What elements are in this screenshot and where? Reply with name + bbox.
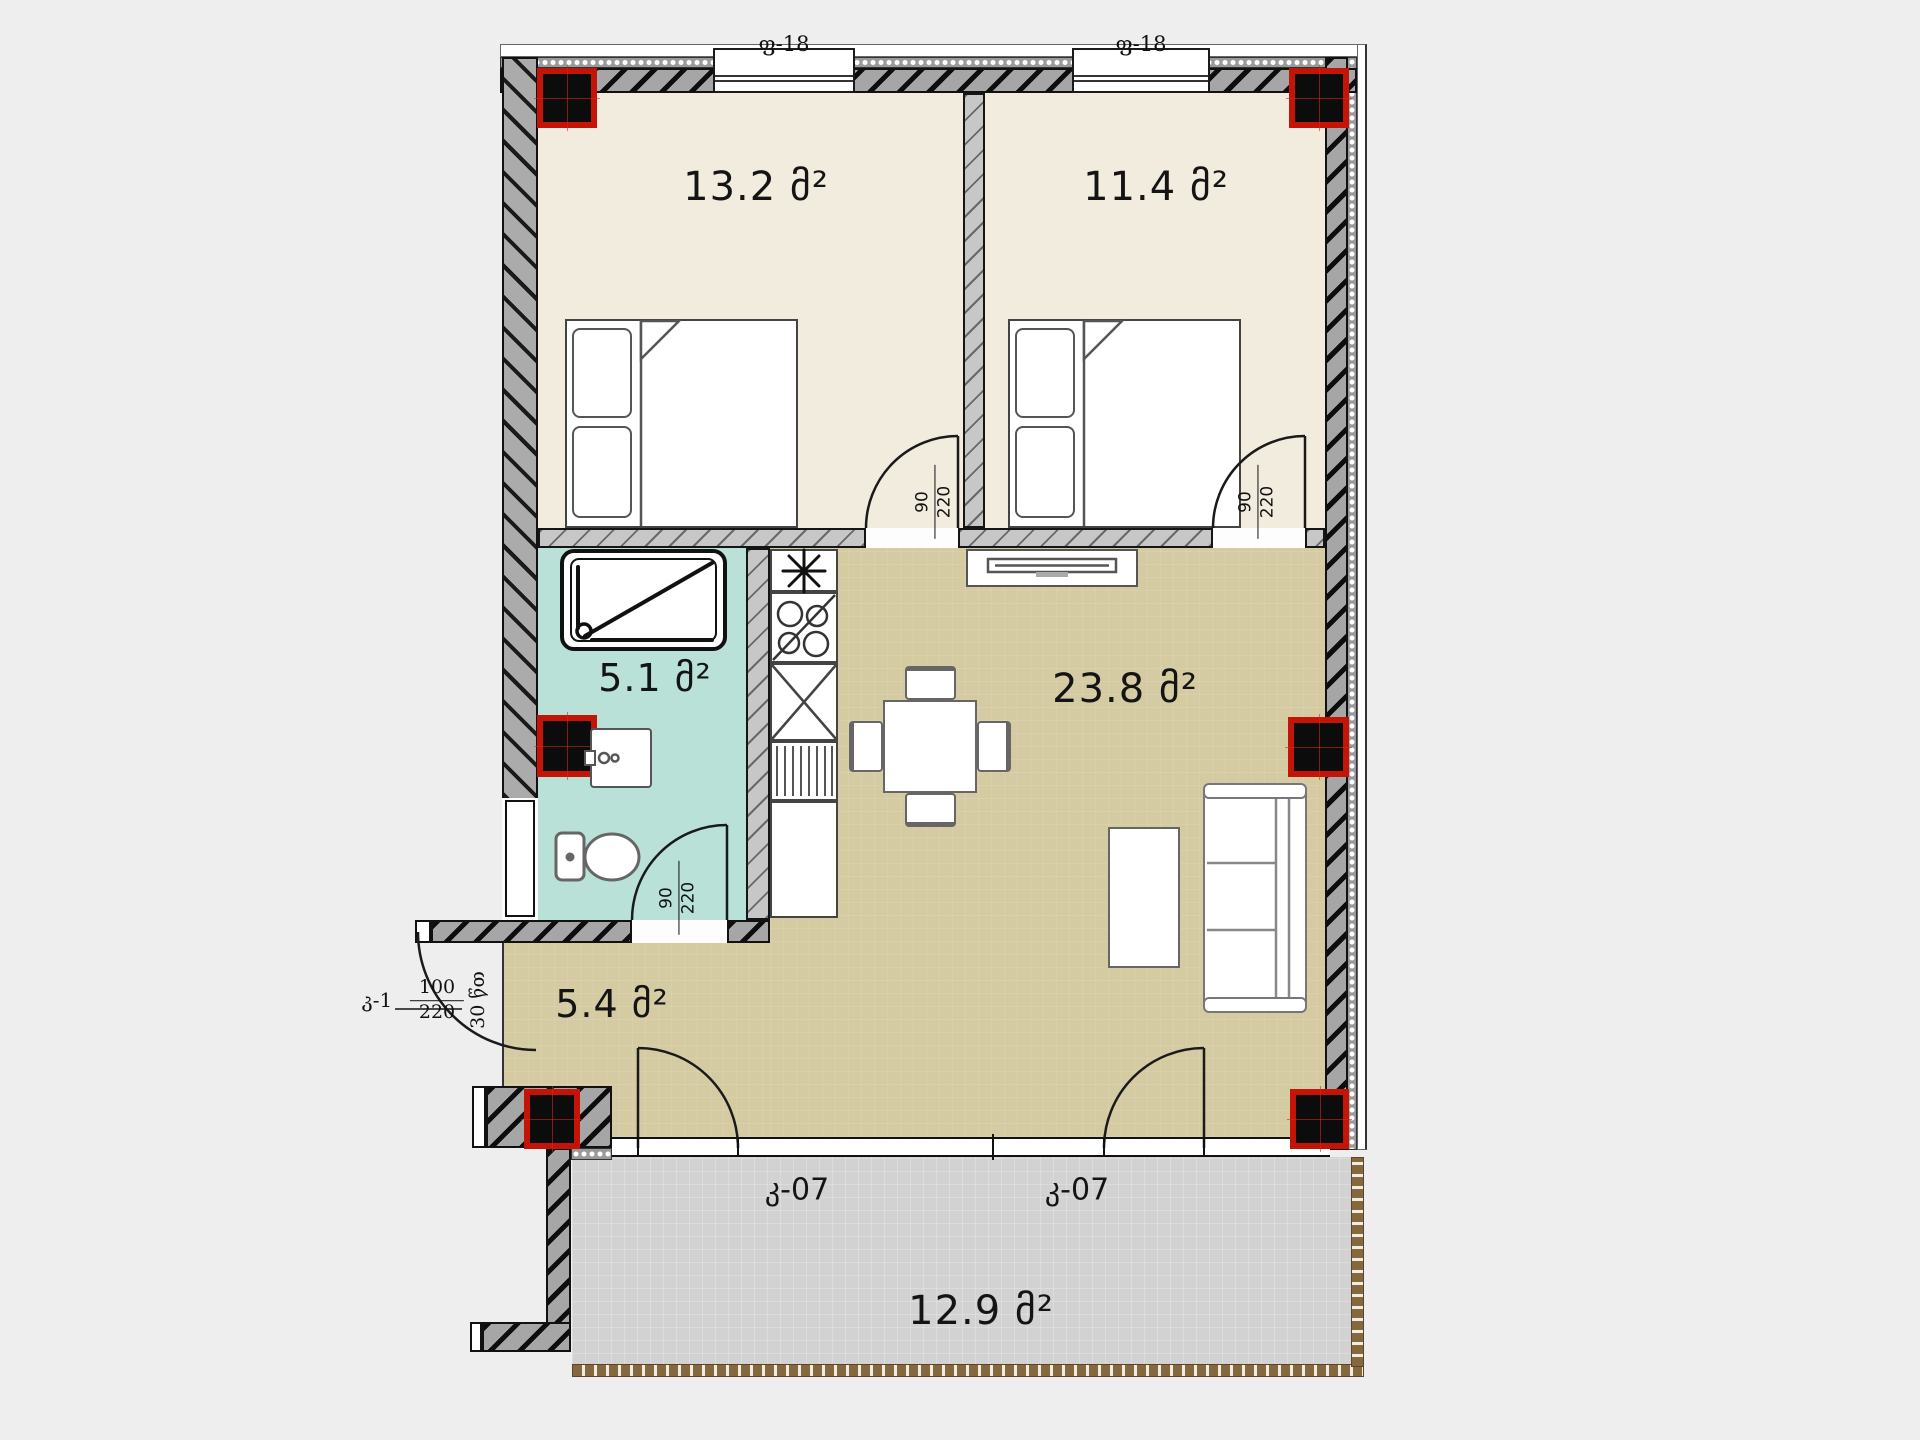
window-glazing-line bbox=[715, 75, 853, 77]
hallway-area-label: 5.4 მ² bbox=[555, 982, 669, 1026]
kitchen-boiler-cabinet bbox=[770, 549, 838, 592]
balcony-glazing-band bbox=[612, 1137, 1330, 1157]
floor-plan-canvas: 13.2 მ² 11.4 მ² 5.1 მ² 23.8 მ² 5.4 მ² 12… bbox=[0, 0, 1920, 1440]
tv-console bbox=[966, 549, 1138, 587]
entrance-door-label: კ-1 bbox=[362, 988, 392, 1012]
living-area-label: 23.8 მ² bbox=[1052, 666, 1198, 712]
bedroom-divider-wall bbox=[963, 93, 985, 528]
bed2-pillow-top bbox=[1015, 328, 1075, 418]
bedroom1-door-size: 90 220 bbox=[913, 465, 954, 539]
balcony-area-label: 12.9 მ² bbox=[908, 1288, 1054, 1334]
balcony-door2-label: კ-07 bbox=[1045, 1173, 1109, 1208]
kitchen-cabinet-x bbox=[770, 663, 838, 741]
top-insulation-strip bbox=[500, 57, 1357, 68]
top-facade-band bbox=[500, 44, 1366, 57]
dining-table bbox=[883, 700, 977, 793]
sink-faucet bbox=[584, 750, 596, 766]
balcony-foot-wall-cap bbox=[470, 1322, 482, 1352]
bed1-pillow-bottom bbox=[572, 426, 632, 518]
balcony-railing-right bbox=[1351, 1157, 1364, 1367]
right-exterior-wall bbox=[1325, 57, 1348, 1150]
window1-label: ფ-18 bbox=[759, 32, 810, 56]
column-mid-left bbox=[537, 715, 597, 777]
bedrooms-bottom-wall-c bbox=[1305, 528, 1325, 548]
balcony-door1-label: კ-07 bbox=[765, 1173, 829, 1208]
coffee-table bbox=[1108, 827, 1180, 968]
sofa-armrest-bottom bbox=[1203, 997, 1307, 1013]
column-top-right bbox=[1289, 68, 1349, 128]
entrance-fire-rating-label: 30 წთ bbox=[467, 971, 489, 1029]
entrance-size-label: 100 220 bbox=[410, 976, 464, 1024]
bathroom-sink bbox=[590, 728, 652, 788]
kitchen-sink-drainer bbox=[770, 741, 838, 801]
kitchen-counter bbox=[770, 801, 838, 918]
bedrooms-bottom-wall-a bbox=[538, 528, 866, 548]
bedroom2-area-label: 11.4 მ² bbox=[1083, 164, 1229, 210]
dining-chair-top bbox=[905, 666, 956, 700]
bathroom-area-label: 5.1 მ² bbox=[598, 656, 712, 700]
bedroom1-area-label: 13.2 მ² bbox=[683, 164, 829, 210]
balcony-floor bbox=[572, 1157, 1360, 1367]
entry-wing-wall bbox=[431, 920, 632, 943]
window-glazing-line bbox=[1074, 75, 1208, 77]
bedroom2-door-size: 90 220 bbox=[1236, 465, 1277, 539]
bed2-pillow-bottom bbox=[1015, 426, 1075, 518]
left-exterior-wall bbox=[502, 57, 538, 800]
window-glazing-line bbox=[715, 80, 853, 82]
bed1-pillow-top bbox=[572, 328, 632, 418]
dining-chair-right bbox=[977, 721, 1011, 772]
dining-chair-bottom bbox=[905, 793, 956, 827]
shower-tray-inner bbox=[570, 558, 717, 642]
top-exterior-wall bbox=[500, 68, 1357, 93]
balcony-insulation-strip bbox=[571, 1148, 612, 1160]
entrance-door-leaf bbox=[505, 800, 535, 917]
column-top-left bbox=[537, 68, 597, 128]
hallway-floor-edge bbox=[502, 943, 504, 1089]
sofa-body bbox=[1203, 783, 1307, 1013]
bathroom-bottom-wall-right bbox=[727, 920, 770, 943]
balcony-foot-wall bbox=[482, 1322, 571, 1352]
kitchen-stove bbox=[770, 592, 838, 663]
entry-wing-wall-cap bbox=[415, 920, 431, 943]
right-facade-band bbox=[1357, 44, 1367, 1150]
window2-label: ფ-18 bbox=[1116, 32, 1167, 56]
bathroom-door-size: 90 220 bbox=[657, 861, 698, 935]
window-glazing-line bbox=[1074, 80, 1208, 82]
sofa-armrest-top bbox=[1203, 783, 1307, 799]
column-mid-right bbox=[1288, 717, 1349, 777]
column-bottom-left bbox=[524, 1089, 580, 1149]
bottom-left-wall-cap bbox=[472, 1086, 486, 1148]
bedrooms-bottom-wall-b bbox=[958, 528, 1213, 548]
right-insulation-strip bbox=[1347, 57, 1357, 1150]
balcony-railing-bottom bbox=[572, 1364, 1364, 1377]
bathroom-right-wall bbox=[746, 548, 770, 920]
dining-chair-left bbox=[849, 721, 883, 772]
column-bottom-right bbox=[1290, 1089, 1349, 1149]
